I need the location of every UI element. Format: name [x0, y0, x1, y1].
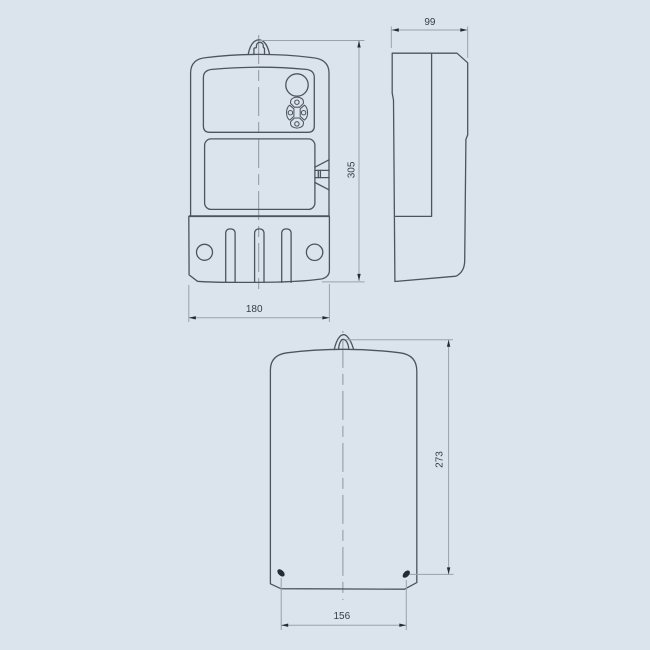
- svg-text:156: 156: [333, 611, 350, 622]
- svg-text:273: 273: [434, 451, 445, 468]
- svg-text:305: 305: [346, 161, 357, 178]
- svg-text:99: 99: [424, 17, 436, 28]
- svg-text:180: 180: [246, 304, 263, 315]
